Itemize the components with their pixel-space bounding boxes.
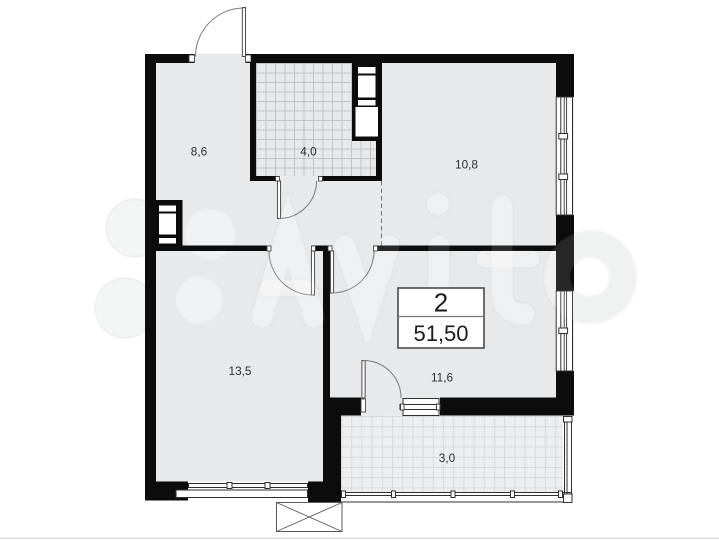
svg-text:4,0: 4,0 <box>300 145 317 159</box>
svg-text:8,6: 8,6 <box>191 145 208 159</box>
svg-text:51,50: 51,50 <box>413 321 468 346</box>
svg-text:10,8: 10,8 <box>455 158 478 172</box>
svg-text:13,5: 13,5 <box>229 364 252 378</box>
svg-text:2: 2 <box>434 288 448 318</box>
svg-text:3,0: 3,0 <box>439 451 456 465</box>
svg-text:11,6: 11,6 <box>431 371 454 385</box>
